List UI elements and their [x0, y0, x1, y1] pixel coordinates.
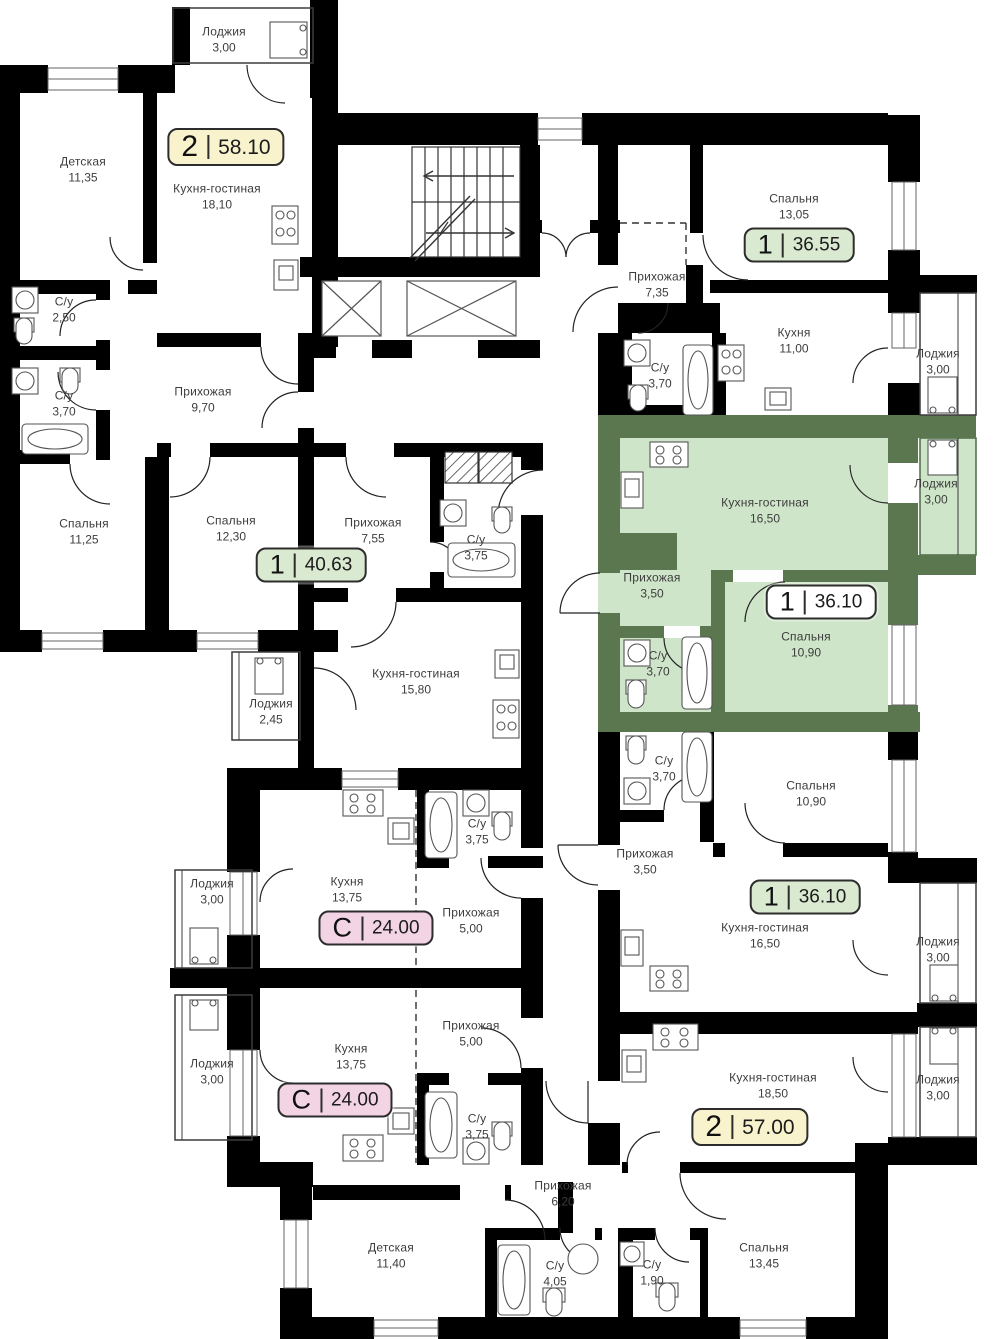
sink-icon: [622, 1050, 646, 1082]
stove-icon: [272, 206, 298, 244]
room-label: Прихожая6,20: [534, 1178, 591, 1209]
badge-divider: [804, 590, 806, 614]
room-label: Прихожая7,35: [628, 269, 685, 300]
staircase: [410, 147, 520, 261]
room-label: Кухня-гостиная15,80: [372, 666, 460, 697]
room-label: Детская11,35: [60, 154, 106, 185]
bathtub-icon: [682, 732, 712, 802]
toilet-icon: [492, 1122, 512, 1150]
washbasin-icon: [624, 340, 650, 366]
room-label: Лоджия3,00: [916, 346, 960, 377]
room-label: Лоджия3,00: [190, 876, 234, 907]
stove-icon: [343, 1135, 383, 1161]
toilet-icon: [626, 680, 646, 708]
room-label: Прихожая3,50: [616, 846, 673, 877]
room-label: С/у3,70: [648, 360, 671, 391]
sink-icon: [765, 388, 791, 410]
room-label: Лоджия3,00: [190, 1056, 234, 1087]
toilet-icon: [626, 736, 646, 764]
balcony-icon: [270, 22, 307, 58]
sink-icon: [495, 650, 519, 678]
room-label: Прихожая9,70: [174, 384, 231, 415]
badge-divider: [207, 135, 209, 159]
balcony-icon: [928, 377, 957, 413]
bathtub-icon: [425, 792, 457, 858]
room-label: С/у3,75: [465, 816, 488, 847]
room-label: Спальня13,45: [739, 1240, 789, 1271]
room-label: Кухня-гостиная18,50: [729, 1070, 817, 1101]
balcony-icon: [190, 928, 218, 964]
washbasin-icon: [624, 778, 650, 804]
room-label: С/у3,75: [464, 532, 487, 563]
room-label: Прихожая3,50: [623, 570, 680, 601]
room-label: С/у3,70: [52, 388, 75, 419]
room-label: С/у3,75: [465, 1111, 488, 1142]
badge-divider: [782, 233, 784, 257]
stove-icon: [343, 790, 383, 816]
balcony-icon: [255, 658, 283, 694]
room-label: С/у3,70: [652, 753, 675, 784]
badge-divider: [361, 916, 363, 940]
room-label: Кухня-гостиная16,50: [721, 920, 809, 951]
bathtub-icon: [425, 1092, 457, 1158]
room-label: Спальня11,25: [59, 516, 109, 547]
badge-divider: [788, 885, 790, 909]
room-label: С/у1,90: [640, 1257, 663, 1288]
room-label: Кухня-гостиная18,10: [173, 181, 261, 212]
apartment-badge[interactable]: 140.63: [256, 548, 367, 583]
room-label: Прихожая5,00: [442, 905, 499, 936]
room-label: Лоджия3,00: [914, 476, 958, 507]
toilet-icon: [14, 318, 34, 344]
apartment-badge[interactable]: 258.10: [167, 128, 284, 166]
apartment-badge[interactable]: С24.00: [318, 911, 433, 946]
floor-plan-drawing: [0, 0, 1000, 1339]
bathtub-icon: [683, 345, 713, 415]
balcony-icon: [930, 965, 958, 1001]
bathtub-icon: [682, 637, 712, 709]
stove-icon: [718, 345, 744, 381]
apartment-badge[interactable]: 136.10: [750, 880, 861, 915]
apartment-badge[interactable]: 136.55: [744, 228, 855, 263]
room-label: Лоджия3,00: [916, 1072, 960, 1103]
toilet-icon: [492, 812, 512, 840]
washbasin-icon: [440, 500, 466, 526]
toilet-icon: [543, 1288, 565, 1316]
room-label: Детская11,40: [368, 1240, 414, 1271]
room-label: Лоджия2,45: [249, 696, 293, 727]
elevators: [322, 281, 516, 336]
apartment-badge[interactable]: С24.00: [277, 1083, 392, 1118]
room-label: Спальня12,30: [206, 513, 256, 544]
badge-divider: [294, 553, 296, 577]
toilet-icon: [628, 385, 648, 411]
sink-icon: [274, 260, 298, 290]
apartment-badge-highlighted[interactable]: 136.10: [766, 585, 877, 620]
room-label: Спальня10,90: [786, 778, 836, 809]
washbasin-icon: [12, 287, 38, 313]
washbasin-icon: [463, 790, 489, 816]
washbasin-icon: [12, 368, 38, 394]
room-label: Лоджия3,00: [202, 24, 246, 55]
room-label: С/у4,05: [543, 1258, 566, 1289]
room-label: Спальня10,90: [781, 629, 831, 660]
room-label: Кухня-гостиная16,50: [721, 495, 809, 526]
balcony-icon: [190, 1000, 218, 1030]
bathtub-icon: [22, 424, 88, 454]
room-label: Кухня11,00: [777, 325, 810, 356]
bathtub-icon: [498, 1245, 530, 1315]
sink-icon: [388, 1108, 414, 1134]
stove-icon: [493, 700, 519, 738]
toilet-icon: [492, 507, 512, 533]
sink-icon: [388, 818, 414, 844]
washbasin-icon: [568, 1244, 598, 1274]
room-label: Лоджия3,00: [916, 934, 960, 965]
badge-divider: [320, 1088, 322, 1112]
shaft-hatched: [445, 452, 512, 483]
room-label: Прихожая7,55: [344, 515, 401, 546]
balcony-icon: [928, 440, 957, 475]
room-label: Спальня13,05: [769, 191, 819, 222]
balcony-icon: [930, 1028, 958, 1064]
room-label: Прихожая5,00: [442, 1018, 499, 1049]
badge-divider: [731, 1115, 733, 1139]
sink-icon: [621, 472, 643, 508]
stove-icon: [653, 1024, 698, 1050]
room-label: С/у2,50: [52, 294, 75, 325]
room-label: Кухня13,75: [330, 874, 363, 905]
room-label: Кухня13,75: [334, 1041, 367, 1072]
apartment-badge[interactable]: 257.00: [691, 1108, 808, 1146]
stove-icon: [650, 442, 688, 467]
stove-icon: [650, 966, 688, 991]
room-label: С/у3,70: [646, 648, 669, 679]
sink-icon: [621, 930, 643, 966]
floor-plan: Лоджия3,00 Детская11,35 Кухня-гостиная18…: [0, 0, 1000, 1339]
